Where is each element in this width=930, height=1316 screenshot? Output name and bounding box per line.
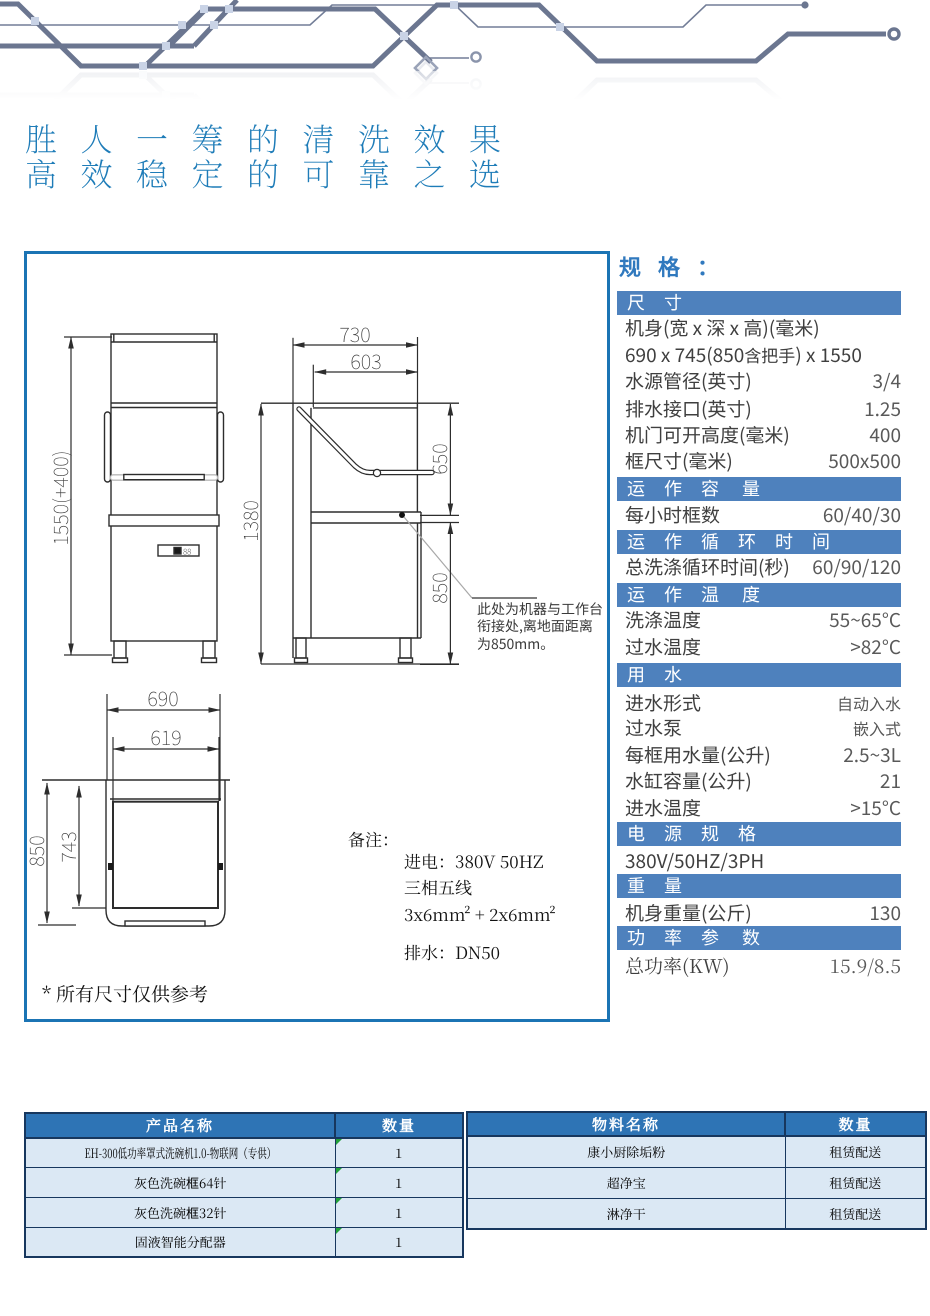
svg-text:1550(+400): 1550(+400) [45, 450, 74, 545]
svg-text:730: 730 [339, 319, 370, 348]
svg-text:850: 850 [24, 835, 50, 866]
svg-text:1380: 1380 [235, 500, 264, 542]
svg-text:619: 619 [150, 722, 181, 751]
svg-text:650: 650 [424, 443, 453, 474]
svg-text:743: 743 [53, 831, 82, 862]
svg-text:690: 690 [147, 683, 178, 712]
svg-text:603: 603 [350, 346, 381, 375]
svg-text:88: 88 [183, 547, 191, 558]
svg-text:850: 850 [424, 572, 453, 603]
